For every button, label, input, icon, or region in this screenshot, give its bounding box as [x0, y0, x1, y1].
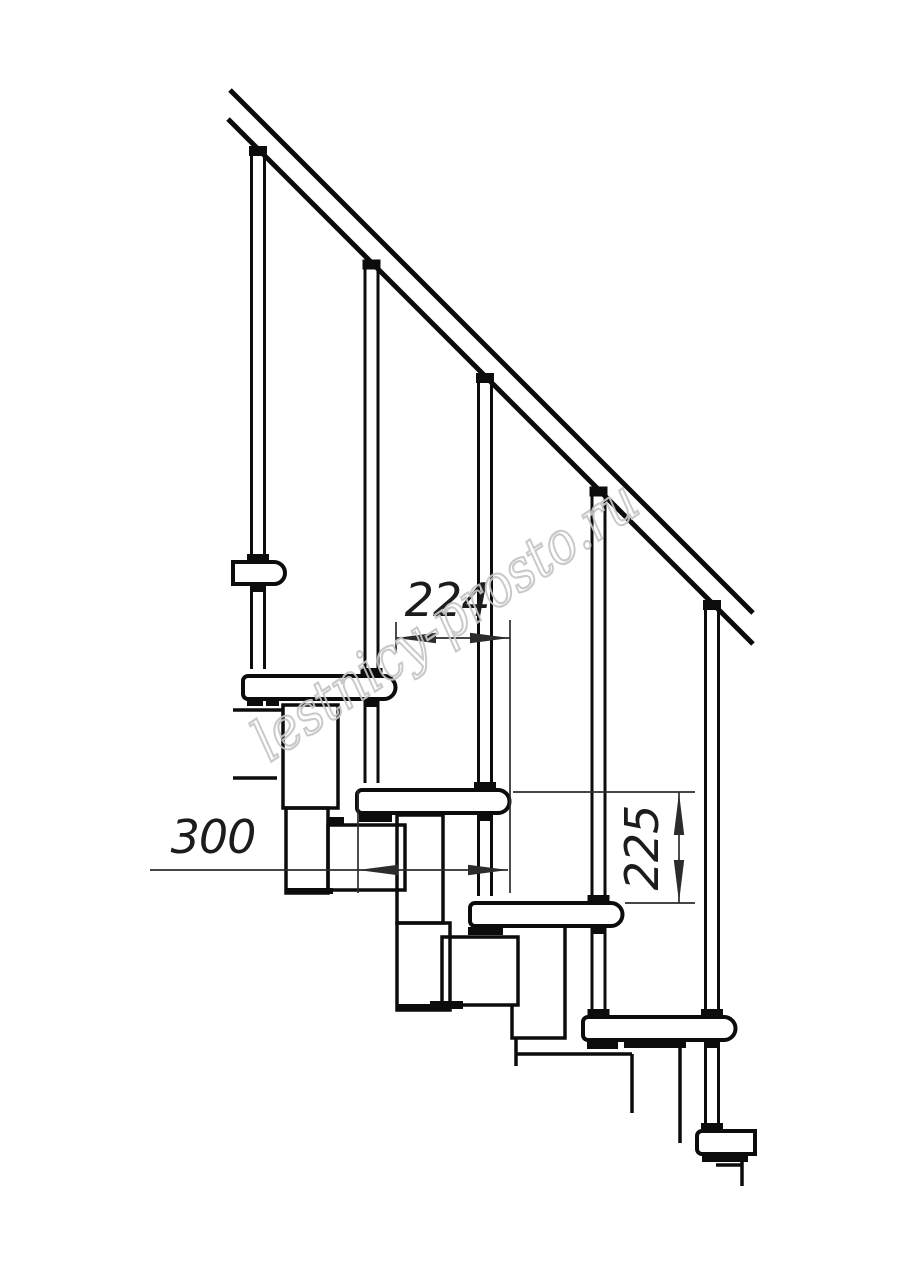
baluster-2 [365, 264, 378, 669]
tread-2 [357, 790, 510, 813]
post-3 [479, 813, 492, 896]
post-clamp-5b [701, 1009, 723, 1018]
tread-4 [583, 1017, 736, 1040]
tread-length-arrow-right [468, 865, 508, 875]
base-clamp-5 [701, 1123, 723, 1132]
tread-5-cut [697, 1131, 755, 1154]
baluster-1 [252, 151, 265, 555]
tread4-clamp-b [624, 1042, 686, 1048]
tread-length-arrow-left [358, 865, 398, 875]
rail-clamp-3 [476, 373, 494, 383]
tread2-clamp-a [329, 817, 344, 825]
rise-dimension-label: 225 [615, 806, 669, 891]
post-clamp-4b [588, 1009, 610, 1018]
post-1 [252, 584, 265, 669]
tread4-clamp-a [587, 1042, 618, 1049]
post-clamp-1a [250, 584, 266, 592]
treads [233, 562, 755, 1154]
module-cut-lines-1 [516, 1038, 632, 1113]
tread-top-stub [233, 562, 285, 584]
staircase-drawing: 224 300 225 lestnicy-prosto.ru [0, 0, 914, 1280]
post-5 [706, 1040, 719, 1124]
module-g-partial [512, 928, 565, 1038]
module-b-foot [285, 888, 333, 894]
tread-3 [470, 903, 623, 926]
baluster-5 [706, 605, 719, 1010]
rail-clamp-2 [363, 260, 381, 270]
rise-arrow-up [674, 793, 684, 835]
tread-length-label: 300 [171, 810, 256, 864]
rail-clamp-1 [249, 146, 267, 156]
base-clamp-4 [588, 895, 610, 904]
rail-clamp-5 [703, 600, 721, 610]
spine-modules [233, 705, 742, 1186]
module-e-foot [397, 1004, 449, 1010]
base-clamp-1 [247, 554, 269, 563]
post-clamp-3a [477, 813, 493, 821]
clamps [247, 146, 748, 1162]
rise-arrow-down [674, 860, 684, 902]
module-cut-lines-3 [716, 1158, 742, 1186]
module-b [286, 808, 328, 893]
drawing-canvas: 224 300 225 lestnicy-prosto.ru [0, 0, 914, 1280]
base-clamp-3 [474, 782, 496, 791]
tread2-clamp-b [359, 814, 392, 822]
module-c [328, 825, 405, 890]
post-clamp-5a [704, 1040, 720, 1048]
module-f [442, 937, 518, 1005]
tread3-clamp [468, 927, 503, 935]
tread5-clamp [702, 1153, 748, 1162]
watermark-text: lestnicy-prosto.ru [239, 466, 650, 774]
post-clamp-4a [591, 926, 607, 934]
post-4 [592, 926, 605, 1010]
